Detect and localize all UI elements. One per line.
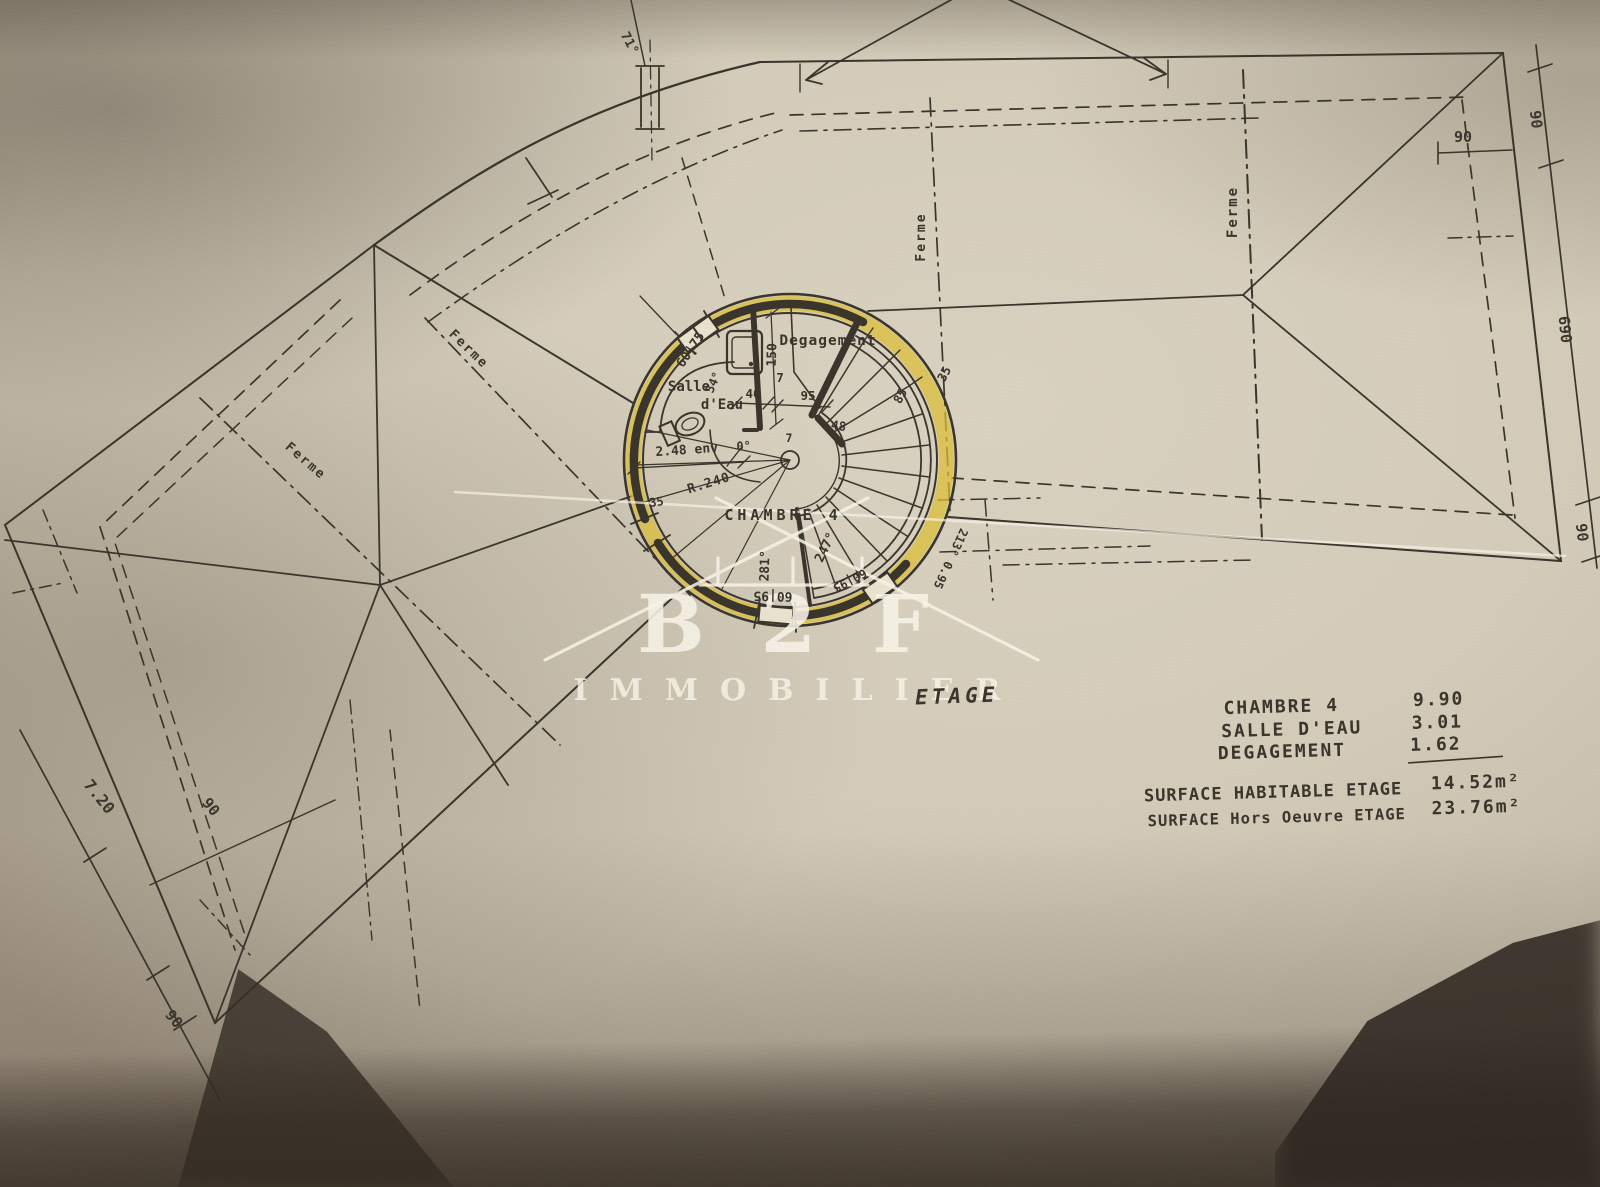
dim-angle-54: 54°: [703, 370, 725, 396]
ferme-label-4: Ferme: [1225, 186, 1241, 238]
curved-facade: [374, 0, 782, 322]
dim-248-env: 2.48 env: [655, 441, 719, 460]
table-row-value: 9.90: [1413, 688, 1465, 710]
dim-right-90-low: 90: [1572, 523, 1592, 543]
table-row-value: 3.01: [1411, 711, 1463, 733]
table-total-label: SURFACE Hors Oeuvre ETAGE: [1147, 805, 1406, 830]
surface-table: CHAMBRE 4 9.90 SALLE D'EAU 3.01 DEGAGEME…: [1141, 687, 1522, 830]
dim-left-90-upper: 90: [198, 794, 223, 819]
table-row-label: SALLE D'EAU: [1221, 717, 1363, 742]
ferme-label-3: Ferme: [914, 212, 929, 261]
ferme-label-1: Ferme: [446, 327, 492, 372]
section-arrows: [800, 0, 1168, 92]
floor-plan-photo: B 2 F IMMOBILIER ETAGE Salle d'Eau Degag…: [0, 0, 1600, 1187]
dim-7b: 7: [786, 431, 793, 445]
room-label-salle-2: d'Eau: [701, 397, 743, 413]
table-row-value: 1.62: [1410, 733, 1462, 755]
dim-radius-240: R.240: [686, 470, 733, 497]
dim-150: 150: [765, 343, 781, 367]
dim-95: 95: [800, 388, 815, 403]
table-total-value: 14.52m²: [1431, 771, 1521, 795]
dim-0deg: 0°: [736, 439, 751, 454]
plan-drawing: B 2 F IMMOBILIER ETAGE Salle d'Eau Degag…: [0, 0, 1600, 1187]
table-row-label: DEGAGEMENT: [1218, 740, 1347, 765]
floor-label: ETAGE: [915, 683, 999, 710]
table-divider: [1408, 756, 1503, 763]
dim-left-90-lower: 90: [161, 1006, 186, 1031]
room-label-degagement: Degagement: [779, 333, 876, 349]
watermark-house-icon: [455, 492, 1565, 660]
dim-48: 48: [830, 417, 847, 434]
table-row-label: CHAMBRE 4: [1223, 695, 1339, 719]
dim-40: 40: [745, 386, 760, 401]
dim-right-690: 690: [1555, 315, 1576, 344]
dim-window-bottom: 60|95: [753, 588, 792, 604]
ferme-label-2: Ferme: [282, 440, 329, 484]
dim-angle-281: 281°: [757, 550, 773, 582]
dim-7a: 7: [776, 370, 784, 385]
dim-right-90-top: 90: [1526, 110, 1546, 130]
dim-right-inner-90: 90: [1454, 128, 1472, 146]
table-total-value: 23.76m²: [1431, 796, 1521, 820]
room-label-chambre: CHAMBRE 4: [724, 506, 841, 524]
table-total-label: SURFACE HABITABLE ETAGE: [1144, 779, 1403, 806]
dim-35-inner: 35: [648, 494, 664, 510]
